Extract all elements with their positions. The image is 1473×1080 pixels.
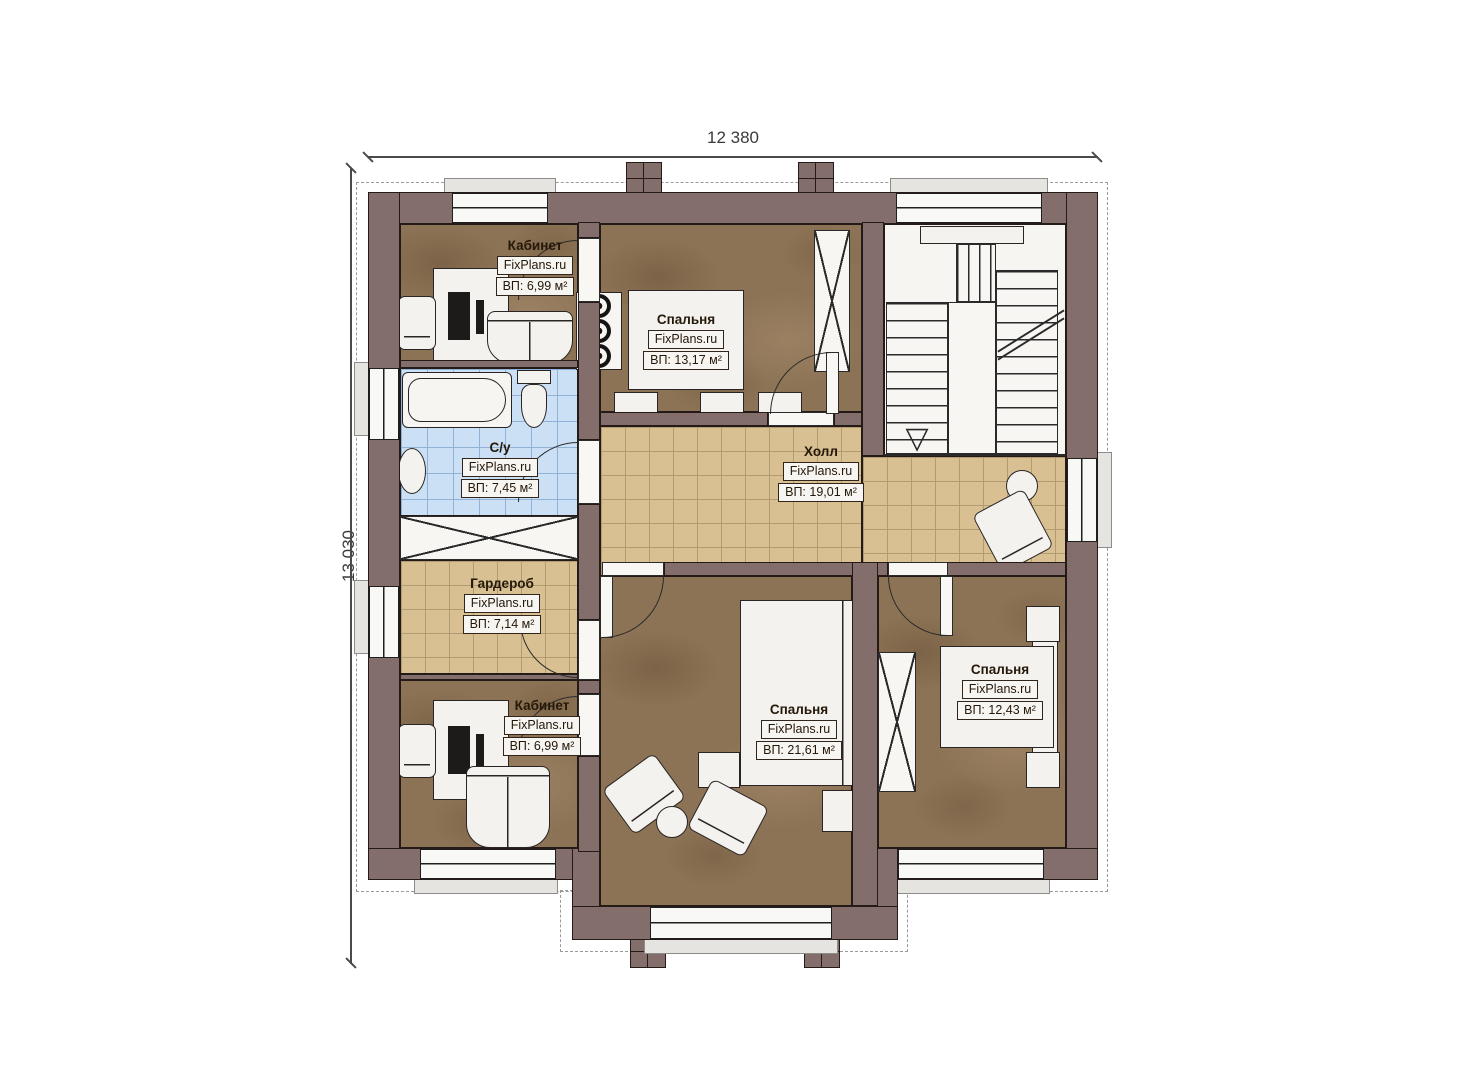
chimney-block [798, 162, 834, 196]
nightstand [1026, 606, 1060, 642]
room-label-hall: Холл FixPlans.ru ВП: 19,01 м² [756, 444, 886, 502]
wall-outer-left [368, 192, 400, 880]
built-in-wardrobe [814, 230, 850, 372]
window [898, 849, 1044, 879]
room-area: ВП: 6,99 м² [503, 737, 582, 756]
stairs-direction-arrow-icon: ▽ [886, 424, 948, 454]
window-sill [414, 878, 558, 894]
room-name: Кабинет [472, 698, 612, 714]
wall-interior [862, 222, 884, 456]
window [896, 193, 1042, 223]
window-sill [644, 938, 838, 954]
nightstand [1026, 752, 1060, 788]
room-label-bedroom-right: Спальня FixPlans.ru ВП: 12,43 м² [934, 662, 1066, 720]
room-brand: FixPlans.ru [462, 458, 539, 477]
window-sill [1096, 452, 1112, 548]
dimension-height-line [350, 168, 352, 964]
door-opening [602, 562, 664, 576]
sink [398, 448, 426, 494]
room-name: Кабинет [462, 238, 608, 254]
room-label-bathroom: С/у FixPlans.ru ВП: 7,45 м² [440, 440, 560, 498]
door-leaf [578, 620, 600, 680]
room-name: Спальня [616, 312, 756, 328]
wall-partition [400, 674, 578, 680]
room-area: ВП: 12,43 м² [957, 701, 1043, 720]
door-leaf [578, 440, 600, 504]
floor-plan-canvas: 12 380 13 030 [0, 0, 1473, 1080]
wall-interior [578, 504, 600, 620]
sofa [487, 311, 573, 364]
built-in-wardrobe [878, 652, 916, 792]
chimney-block [626, 162, 662, 196]
room-area: ВП: 21,61 м² [756, 741, 842, 760]
wall-interior [578, 222, 600, 238]
door-opening [888, 562, 948, 576]
wall-interior [578, 756, 600, 852]
dimension-width-label: 12 380 [368, 128, 1098, 152]
room-brand: FixPlans.ru [761, 720, 838, 739]
office-chair [398, 296, 436, 350]
office-chair [398, 724, 436, 778]
room-area: ВП: 7,14 м² [463, 615, 542, 634]
dimension-width-line [368, 156, 1098, 158]
room-area: ВП: 19,01 м² [778, 483, 864, 502]
room-brand: FixPlans.ru [497, 256, 574, 275]
computer-monitor [448, 726, 470, 774]
window [420, 849, 556, 879]
bathtub-inner [408, 378, 506, 422]
wall-interior [946, 562, 1066, 576]
room-area: ВП: 6,99 м² [496, 277, 575, 296]
room-label-bedroom-center: Спальня FixPlans.ru ВП: 21,61 м² [730, 702, 868, 760]
toilet-bowl [521, 384, 547, 428]
room-brand: FixPlans.ru [464, 594, 541, 613]
side-table [656, 806, 688, 838]
room-area: ВП: 13,17 м² [643, 351, 729, 370]
room-label-wardrobe: Гардероб FixPlans.ru ВП: 7,14 м² [438, 576, 566, 634]
wall-interior [834, 412, 862, 426]
room-area: ВП: 7,45 м² [461, 479, 540, 498]
room-brand: FixPlans.ru [783, 462, 860, 481]
built-in-wardrobe [400, 516, 578, 560]
toilet-tank [517, 370, 551, 384]
window [1067, 458, 1097, 542]
room-name: Спальня [934, 662, 1066, 678]
bathtub [402, 372, 512, 428]
wall-partition [400, 360, 578, 368]
stairs-right-flight [996, 270, 1058, 454]
window-sill [890, 878, 1050, 894]
window [650, 907, 832, 939]
room-label-office-top: Кабинет FixPlans.ru ВП: 6,99 м² [462, 238, 608, 296]
room-name: Спальня [730, 702, 868, 718]
room-brand: FixPlans.ru [648, 330, 725, 349]
door-opening [768, 412, 834, 426]
sofa [466, 766, 550, 848]
room-name: Гардероб [438, 576, 566, 592]
room-brand: FixPlans.ru [962, 680, 1039, 699]
room-name: Холл [756, 444, 886, 460]
window [452, 193, 548, 223]
room-label-bedroom-top: Спальня FixPlans.ru ВП: 13,17 м² [616, 312, 756, 370]
room-brand: FixPlans.ru [504, 716, 581, 735]
room-label-office-bottom: Кабинет FixPlans.ru ВП: 6,99 м² [472, 698, 612, 756]
room-name: С/у [440, 440, 560, 456]
wall-interior [600, 412, 768, 426]
wall-interior [578, 680, 600, 694]
stairs-upper-flight [956, 244, 996, 302]
computer-tower [476, 300, 484, 334]
window [369, 368, 399, 440]
wall-interior [578, 302, 600, 440]
computer-monitor [448, 292, 470, 340]
stairs-landing [948, 302, 996, 454]
stairs-window-sill [920, 226, 1024, 244]
window [369, 586, 399, 658]
